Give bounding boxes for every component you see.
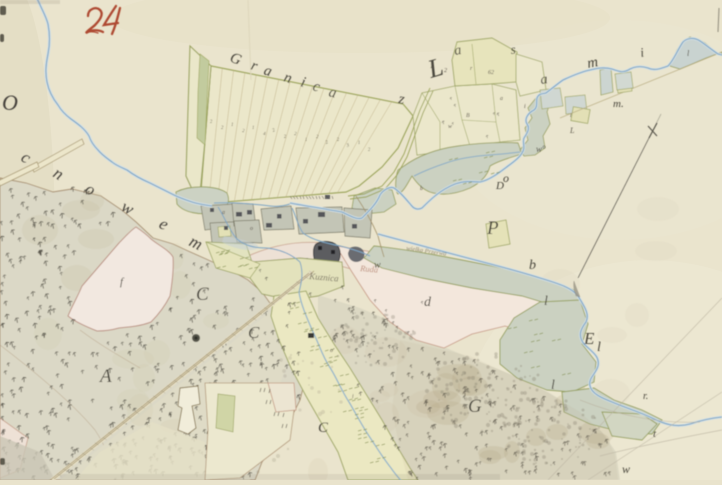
svg-text:m.: m. [613,98,624,110]
svg-text:A: A [98,366,112,387]
svg-text:62: 62 [488,70,494,76]
svg-text:a: a [222,210,225,216]
svg-text:C: C [248,323,260,342]
svg-text:b: b [529,258,536,273]
svg-text:a: a [500,96,503,102]
svg-text:o: o [250,226,253,232]
svg-text:Ruda: Ruda [359,263,379,275]
svg-text:l: l [544,294,548,309]
svg-text:w: w [622,462,630,476]
svg-text:o': o' [330,348,335,354]
svg-text:C: C [318,420,329,436]
svg-text:1: 1 [305,138,308,143]
svg-text:w: w [448,124,452,130]
svg-text:1: 1 [231,123,234,128]
svg-text:w°: w° [536,144,546,154]
svg-text:2: 2 [444,68,447,74]
svg-text:O: O [2,90,18,115]
svg-text:E: E [583,329,595,348]
svg-text:B: B [466,113,470,119]
svg-text:l: l [597,340,601,355]
svg-text:P: P [486,218,499,239]
svg-text:1: 1 [252,126,255,131]
svg-text:l: l [551,378,555,393]
svg-text:C: C [196,284,209,305]
svg-text:b: b [420,186,423,192]
svg-text:d: d [424,295,432,310]
svg-text:G: G [468,396,482,417]
svg-text:L: L [569,126,575,135]
svg-text:D: D [495,180,504,192]
svg-text:1: 1 [430,64,433,70]
svg-text:r.: r. [643,391,648,402]
